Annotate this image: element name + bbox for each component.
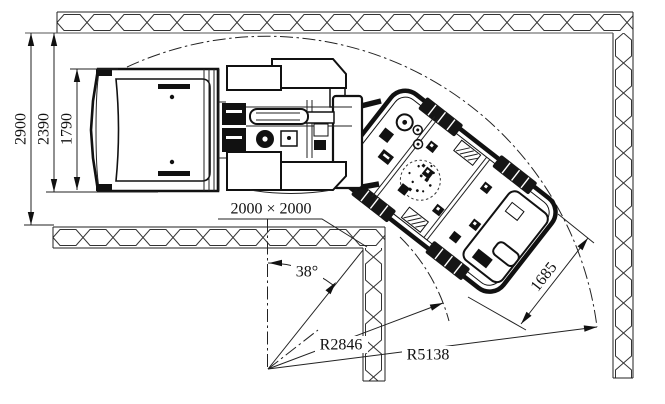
top-fender-right: [272, 59, 346, 88]
dim-inner-turning-radius: R2846: [320, 337, 363, 354]
branch-wall-hatch: [363, 227, 385, 381]
turning-clearance-drawing: 2900 2390 1790 2000 × 2000 38°: [0, 0, 665, 404]
drawing-svg: 2900 2390 1790 2000 × 2000 38°: [0, 0, 665, 404]
dim-opening-size: 2000 × 2000: [230, 201, 311, 218]
bucket-corner-bracket-bottom: [96, 184, 112, 191]
top-wall-hatch: [57, 12, 633, 33]
top-fender-left: [227, 66, 281, 90]
dim-angle-group: 38°: [268, 260, 339, 294]
dim-bucket-width: 1790: [59, 113, 76, 145]
bottom-wall-hatch: [53, 227, 385, 248]
bottom-fender-right: [272, 162, 346, 190]
dim-clearance-envelope: 2390: [36, 113, 53, 145]
dim-tunnel-width: 2900: [13, 113, 30, 145]
machine-front-section: [91, 59, 381, 194]
dim-outer-turning-radius: R5138: [407, 347, 450, 364]
right-wall-hatch: [613, 12, 633, 378]
bottom-fender-left: [227, 152, 281, 190]
dim-articulation-angle: 38°: [296, 264, 318, 281]
bucket-corner-bracket-top: [96, 69, 112, 76]
bucket: [91, 69, 226, 191]
